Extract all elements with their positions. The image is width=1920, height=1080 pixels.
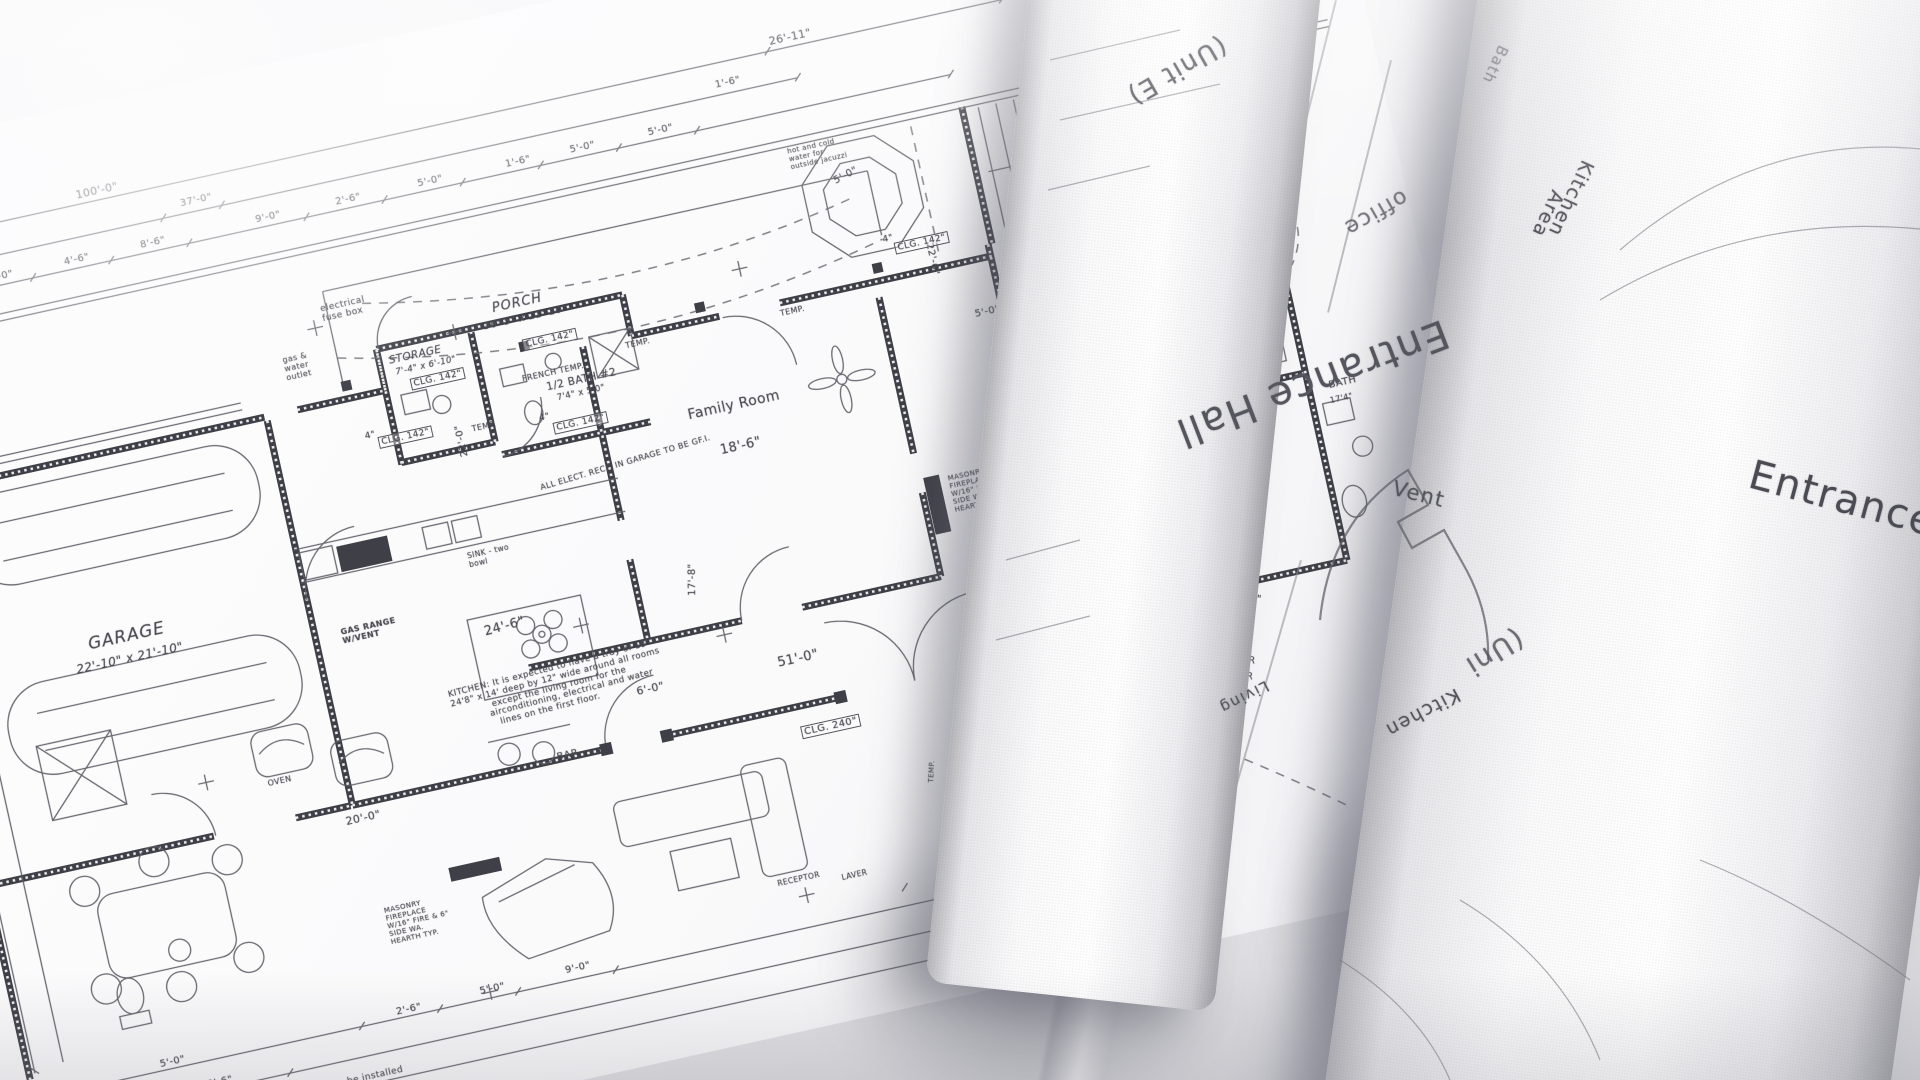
dim-label: 17'-8" <box>687 563 698 596</box>
photo-rolled-blueprints: 100'-0" 23'-6" 37'-0" 9'-0" 2'-6" 5'-0" … <box>0 0 1920 1080</box>
note-temp: TEMP. <box>927 760 936 782</box>
rolled-blueprint-right <box>1312 0 1920 1080</box>
